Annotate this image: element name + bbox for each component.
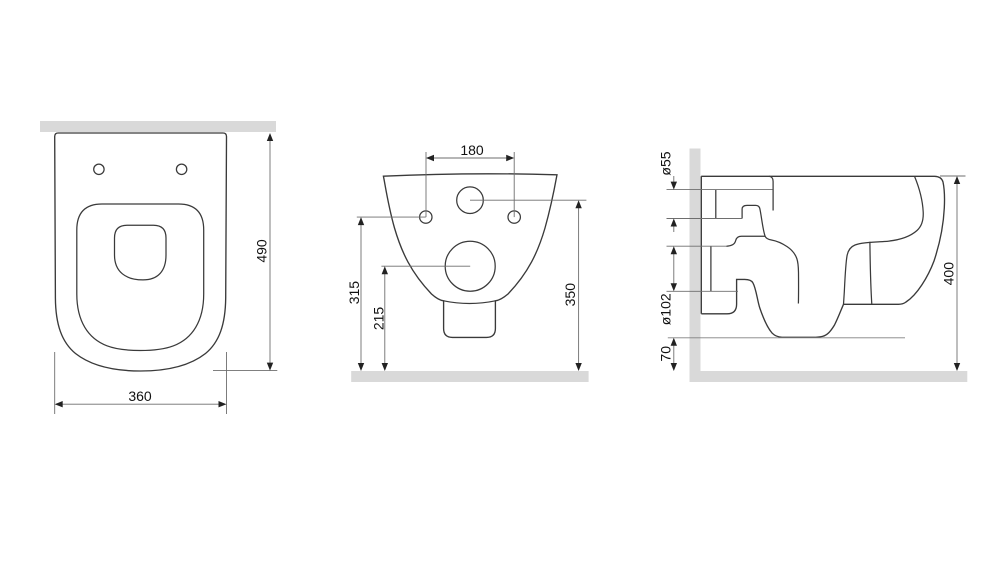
svg-text:ø102: ø102 [657,293,673,325]
svg-text:490: 490 [254,239,270,263]
svg-text:400: 400 [941,262,957,286]
svg-text:180: 180 [460,142,484,158]
svg-text:360: 360 [128,388,152,404]
svg-text:215: 215 [371,307,387,331]
svg-text:315: 315 [346,281,362,305]
svg-text:ø55: ø55 [657,151,673,175]
svg-text:350: 350 [562,283,578,307]
svg-text:70: 70 [657,346,673,362]
